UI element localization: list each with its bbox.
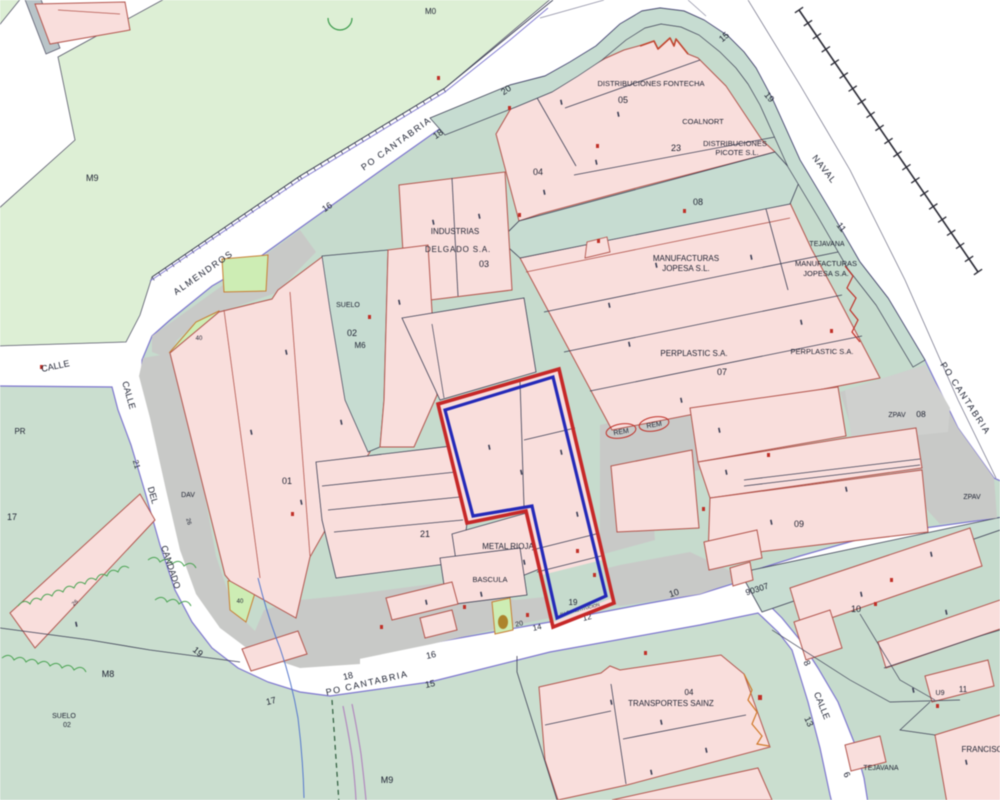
svg-text:PR: PR [14, 427, 25, 436]
svg-text:M6: M6 [354, 341, 366, 350]
svg-text:M9: M9 [86, 173, 99, 183]
svg-text:U9: U9 [936, 690, 945, 697]
svg-text:JOPESA S.L.: JOPESA S.L. [662, 264, 710, 273]
svg-text:TRANSPORTES SAINZ: TRANSPORTES SAINZ [628, 699, 714, 708]
svg-text:16: 16 [425, 649, 437, 661]
svg-text:MANUFACTURAS: MANUFACTURAS [795, 259, 857, 268]
svg-text:M9: M9 [381, 775, 394, 785]
svg-text:ZPAV: ZPAV [963, 494, 981, 501]
svg-text:COALNORT: COALNORT [682, 117, 724, 126]
svg-text:PICOTE S.L.: PICOTE S.L. [715, 148, 758, 157]
svg-text:JOPESA S.A.: JOPESA S.A. [803, 269, 848, 278]
svg-text:DISTRIBUCIONES: DISTRIBUCIONES [703, 139, 767, 148]
svg-text:02: 02 [63, 722, 71, 729]
svg-text:15: 15 [424, 678, 436, 690]
svg-text:ZPAV: ZPAV [888, 412, 906, 419]
svg-text:DAV: DAV [181, 492, 195, 499]
svg-text:04: 04 [685, 688, 694, 697]
svg-text:SUELO: SUELO [52, 713, 76, 720]
svg-text:M0: M0 [425, 7, 437, 16]
svg-text:40: 40 [237, 599, 244, 605]
svg-text:02: 02 [347, 328, 357, 338]
svg-text:19: 19 [569, 598, 578, 607]
svg-text:PERPLASTIC S.A.: PERPLASTIC S.A. [791, 347, 854, 356]
svg-text:DELGADO S.A.: DELGADO S.A. [425, 245, 491, 254]
svg-text:40: 40 [196, 336, 203, 342]
svg-text:DISTRIBUCIONES FONTECHA: DISTRIBUCIONES FONTECHA [597, 79, 704, 88]
svg-text:05: 05 [618, 95, 628, 105]
svg-text:INDUSTRIAS: INDUSTRIAS [431, 227, 479, 236]
svg-text:PERPLASTIC S.A.: PERPLASTIC S.A. [660, 349, 727, 358]
svg-text:09: 09 [794, 519, 804, 529]
svg-text:FRANCISCO: FRANCISCO [961, 745, 1000, 754]
svg-text:TEJAVANA: TEJAVANA [809, 241, 844, 248]
svg-text:M8: M8 [102, 669, 115, 679]
svg-text:21: 21 [420, 529, 430, 539]
svg-text:08: 08 [916, 409, 926, 419]
svg-text:MANUFACTURAS: MANUFACTURAS [653, 254, 719, 263]
svg-text:METAL RIOJA: METAL RIOJA [482, 542, 534, 551]
svg-text:08: 08 [693, 197, 703, 207]
svg-text:SUELO: SUELO [336, 302, 360, 309]
svg-text:03: 03 [479, 259, 489, 269]
svg-text:17: 17 [7, 512, 17, 522]
svg-text:01: 01 [282, 476, 292, 486]
svg-text:04: 04 [533, 167, 543, 177]
svg-text:23: 23 [671, 143, 681, 153]
svg-text:TEJAVANA: TEJAVANA [863, 765, 898, 772]
svg-text:10: 10 [851, 604, 861, 614]
svg-text:11: 11 [959, 685, 968, 694]
svg-text:BASCULA: BASCULA [472, 575, 507, 584]
svg-text:07: 07 [717, 367, 727, 377]
